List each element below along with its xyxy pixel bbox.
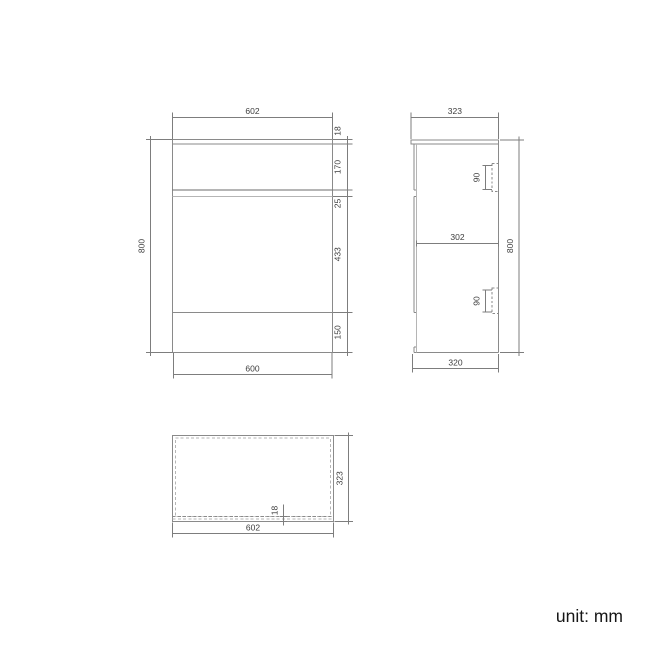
plan-dim-width-bottom: 602 bbox=[173, 523, 334, 538]
vanity-dimension-drawing: 602 18 170 25 433 150 800 bbox=[0, 0, 650, 650]
front-dim-width-bottom: 600 bbox=[173, 353, 331, 379]
dim-label-800-front: 800 bbox=[137, 239, 147, 253]
dim-label-18: 18 bbox=[333, 126, 343, 136]
dim-label-800-side: 800 bbox=[505, 239, 515, 253]
side-lower-handle: 90 bbox=[472, 288, 499, 314]
side-dim-depth-top: 323 bbox=[411, 106, 498, 139]
dim-label-150: 150 bbox=[333, 325, 343, 339]
plan-hidden-carcass-outline bbox=[175, 438, 330, 517]
dim-label-90-lower: 90 bbox=[472, 296, 482, 306]
dim-label-170: 170 bbox=[333, 160, 343, 174]
dim-label-600: 600 bbox=[245, 364, 259, 374]
unit-label: unit: mm bbox=[556, 606, 623, 626]
dim-label-433: 433 bbox=[333, 247, 343, 261]
front-dim-width-top: 602 bbox=[173, 106, 333, 139]
plan-view: 18 323 602 bbox=[173, 433, 353, 538]
dim-label-323-top: 323 bbox=[448, 106, 462, 116]
dim-label-602-plan: 602 bbox=[246, 523, 260, 533]
side-dim-depth-bottom: 320 bbox=[413, 354, 499, 373]
front-view: 602 18 170 25 433 150 800 bbox=[137, 106, 353, 379]
plan-dim-front-thickness: 18 bbox=[269, 505, 287, 526]
dim-label-25: 25 bbox=[333, 199, 343, 209]
side-dim-inner-depth: 302 bbox=[417, 232, 499, 246]
side-upper-handle: 90 bbox=[472, 164, 499, 192]
side-worktop-slab bbox=[411, 140, 498, 144]
front-dim-height-left: 800 bbox=[137, 136, 173, 356]
hidden-handle-outline bbox=[492, 288, 498, 314]
drawing-svg: 602 18 170 25 433 150 800 bbox=[0, 0, 650, 650]
side-view: 302 90 90 323 bbox=[411, 106, 524, 373]
dim-label-302: 302 bbox=[450, 232, 464, 242]
dim-label-90-upper: 90 bbox=[472, 173, 482, 183]
plan-worktop-outline bbox=[173, 435, 334, 521]
front-cabinet-outline bbox=[173, 140, 333, 353]
dim-label-18-plan: 18 bbox=[269, 506, 279, 516]
plan-dim-depth-right: 323 bbox=[334, 433, 353, 525]
dim-label-602-top: 602 bbox=[245, 106, 259, 116]
front-dim-chain-right: 18 170 25 433 150 bbox=[333, 126, 353, 356]
dim-label-323-plan: 323 bbox=[334, 471, 344, 485]
dim-label-320: 320 bbox=[448, 358, 462, 368]
side-dim-height-right: 800 bbox=[500, 137, 524, 357]
hidden-handle-outline bbox=[492, 164, 498, 192]
